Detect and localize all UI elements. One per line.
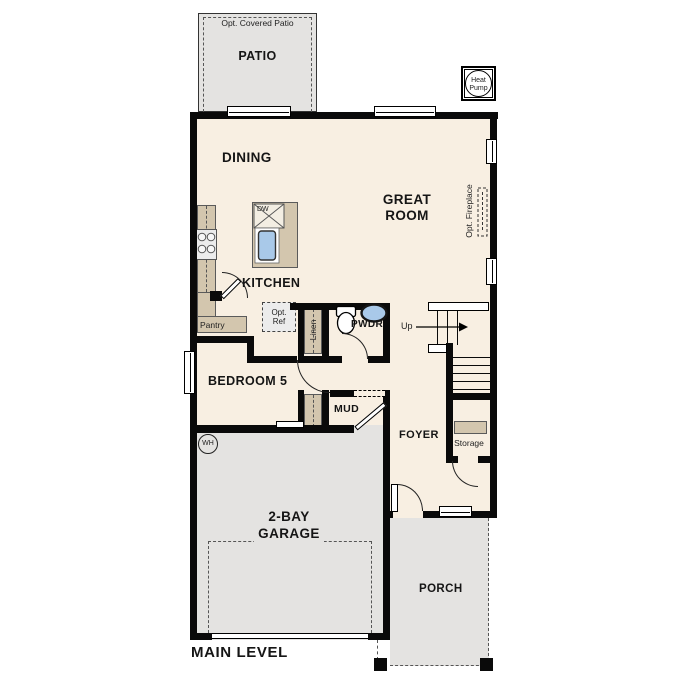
foyer-label: FOYER	[399, 429, 439, 441]
garage-label-line1: 2-BAY	[229, 508, 349, 525]
storage-label: Storage	[449, 438, 489, 448]
stairs-up-arrow	[416, 323, 468, 332]
water-heater-label: WH	[202, 440, 214, 447]
garage-label: 2-BAY GARAGE	[229, 508, 349, 542]
dining-label: DINING	[222, 150, 272, 165]
floor-plan: Opt. Covered Patio PATIO Opt. Ref	[0, 0, 687, 687]
heat-pump-inner-square: Heat Pump	[464, 69, 493, 98]
kitchen-sink-icon	[255, 228, 279, 263]
bedroom5-label: BEDROOM 5	[208, 374, 287, 388]
heat-pump-circle: Heat Pump	[465, 70, 492, 97]
pantry-label: Pantry	[200, 320, 225, 330]
porch-label: PORCH	[419, 583, 463, 595]
heat-pump-label-line2: Pump	[466, 85, 491, 93]
main-level-title: MAIN LEVEL	[191, 644, 288, 661]
kitchen-label: KITCHEN	[242, 276, 300, 290]
great-room-label-line1: GREAT	[370, 192, 444, 208]
opt-fireplace-label: Opt. Fireplace	[464, 181, 474, 241]
great-room-label: GREAT ROOM	[370, 192, 444, 224]
great-room-label-line2: ROOM	[370, 208, 444, 224]
dishwasher-label: DW	[257, 206, 269, 213]
closet-door-leaf	[276, 421, 304, 428]
stove-burners-icon	[198, 233, 215, 253]
opt-fireplace-icon	[478, 188, 487, 236]
water-heater: WH	[198, 434, 218, 454]
front-door-leaf	[391, 484, 398, 512]
stairs-up-label: Up	[401, 321, 413, 331]
mud-label: MUD	[334, 403, 359, 415]
powder-label: PWDR	[351, 319, 383, 330]
linen-label: Linen	[308, 305, 318, 355]
heat-pump-label-line1: Heat	[466, 77, 491, 85]
heat-pump: Heat Pump	[461, 66, 496, 101]
garage-label-line2: GARAGE	[254, 525, 324, 542]
